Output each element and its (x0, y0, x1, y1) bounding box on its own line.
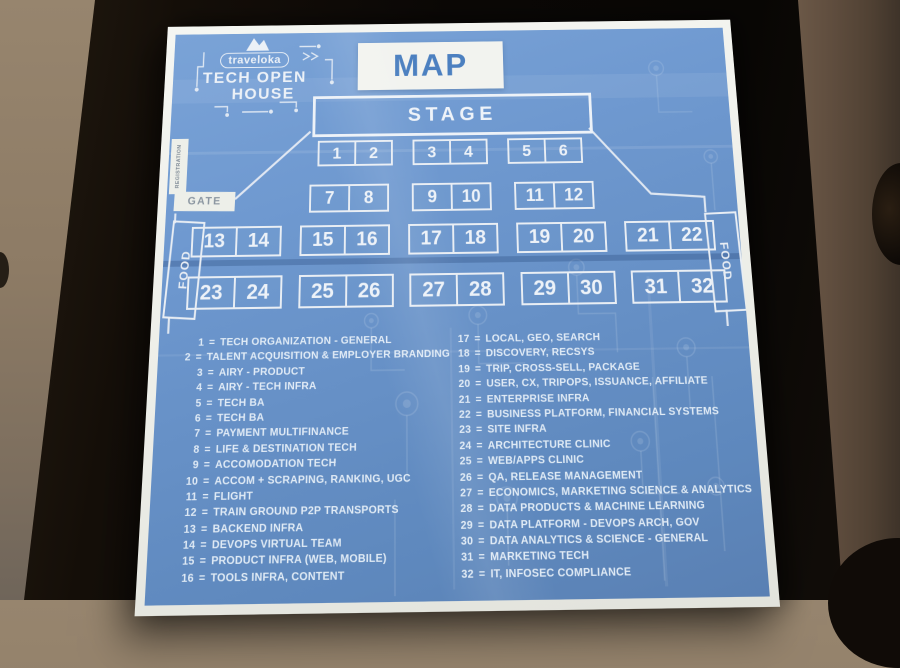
gate-label: GATE (173, 192, 235, 212)
legend-number: 8 (179, 444, 200, 456)
legend-label: ENTERPRISE INFRA (487, 392, 590, 405)
booth-pair: 2728 (409, 272, 505, 307)
legend-label: DATA PLATFORM - DEVOPS ARCH, GOV (489, 516, 700, 531)
legend-label: TRIP, CROSS-SELL, PACKAGE (486, 361, 640, 375)
legend-column-right: 17=LOCAL, GEO, SEARCH18=DISCOVERY, RECSY… (450, 330, 769, 585)
legend-label: ACCOMODATION TECH (215, 458, 337, 472)
legend-equals: = (472, 503, 489, 516)
traveloka-bird-icon (246, 36, 270, 52)
legend-number: 31 (453, 552, 474, 565)
legend-number: 7 (180, 428, 201, 440)
legend-number: 23 (451, 425, 471, 437)
legend-label: TECH BA (217, 397, 264, 409)
legend-label: PAYMENT MULTIFINANCE (216, 426, 349, 440)
traveloka-wordmark: traveloka (220, 52, 290, 68)
registration-label: REGISTRATION (169, 139, 189, 194)
legend-equals: = (470, 348, 486, 360)
booth-cell: 20 (560, 223, 605, 250)
booth-pair: 34 (413, 139, 489, 166)
legend-equals: = (470, 394, 486, 406)
booth-cell: 26 (345, 276, 392, 306)
booth-cell: 2 (354, 142, 391, 164)
booth-cell: 8 (348, 186, 387, 211)
booth-cell: 6 (544, 139, 582, 161)
legend-equals: = (473, 535, 490, 548)
legend-number: 3 (183, 367, 203, 379)
booth-cell: 3 (414, 141, 449, 163)
legend-number: 30 (452, 536, 473, 549)
legend-equals: = (469, 333, 485, 345)
legend-label: DISCOVERY, RECSYS (486, 347, 595, 360)
map-print-area: traveloka TECH OPEN HOUSE MAP STAGE 1234… (145, 28, 770, 606)
booth-cell: 10 (451, 184, 490, 209)
booth-cell: 5 (509, 140, 544, 162)
food-right-text: FOOD (717, 242, 735, 281)
legend-label: AIRY - PRODUCT (219, 366, 305, 379)
legend-number: 20 (450, 379, 470, 391)
legend-number: 5 (181, 398, 201, 410)
legend-label: TOOLS INFRA, CONTENT (210, 570, 344, 585)
legend-number: 22 (451, 409, 471, 421)
legend-equals: = (474, 568, 491, 581)
legend-number: 15 (173, 556, 194, 569)
booth-pair: 1718 (408, 223, 499, 255)
legend-label: ECONOMICS, MARKETING SCIENCE & ANALYTICS (489, 483, 753, 499)
legend-equals: = (199, 444, 216, 456)
legend-number: 27 (452, 487, 473, 499)
legend-equals: = (471, 440, 488, 452)
legend-number: 1 (184, 337, 204, 349)
booth-cell: 19 (518, 224, 561, 251)
booth-cell: 31 (633, 272, 679, 302)
legend-number: 16 (173, 572, 194, 585)
legend-equals: = (201, 397, 218, 409)
legend-equals: = (194, 556, 211, 569)
food-left-text: FOOD (175, 250, 193, 289)
stage-box: STAGE (312, 93, 593, 137)
logo-house-text: HOUSE (231, 85, 295, 104)
legend-label: SITE INFRA (487, 423, 547, 436)
booth-cell: 15 (301, 227, 344, 254)
booth-cell: 17 (410, 225, 452, 252)
legend-label: TALENT ACQUISITION & EMPLOYER BRANDING (206, 349, 450, 364)
legend-number: 17 (450, 334, 470, 346)
legend-label: LIFE & DESTINATION TECH (215, 442, 356, 456)
legend-equals: = (470, 378, 486, 390)
legend-number: 4 (182, 382, 202, 394)
registration-text: REGISTRATION (175, 145, 183, 189)
legend-label: QA, RELEASE MANAGEMENT (488, 469, 642, 483)
legend-number: 26 (452, 471, 472, 483)
booth-cell: 18 (452, 225, 497, 252)
legend-label: AIRY - TECH INFRA (218, 381, 317, 394)
legend-label: DATA PRODUCTS & MACHINE LEARNING (489, 500, 705, 515)
legend-number: 14 (174, 540, 195, 553)
legend-number: 28 (452, 503, 473, 516)
booth-pair: 56 (507, 137, 583, 163)
booth-cell: 14 (235, 228, 280, 255)
legend-label: DEVOPS VIRTUAL TEAM (212, 537, 342, 551)
legend-label: WEB/APPS CLINIC (488, 454, 584, 467)
booth-cell: 9 (414, 185, 451, 210)
legend-equals: = (471, 424, 488, 436)
legend-equals: = (198, 475, 215, 487)
legend-equals: = (198, 459, 215, 471)
legend-equals: = (202, 382, 219, 394)
booth-cell: 4 (449, 141, 486, 163)
booth-pair: 1920 (516, 221, 607, 253)
legend-equals: = (473, 552, 490, 565)
booth-pair: 1516 (299, 224, 390, 256)
legend-number: 25 (451, 456, 471, 468)
legend-equals: = (470, 363, 486, 375)
legend-label: MARKETING TECH (490, 550, 590, 564)
booth-cell: 16 (344, 226, 388, 253)
legend-number: 11 (177, 491, 198, 504)
legend-equals: = (195, 539, 212, 552)
booth-pair: 1112 (514, 181, 595, 210)
legend-label: IT, INFOSEC COMPLIANCE (490, 566, 631, 581)
legend-equals: = (473, 519, 490, 532)
legend-equals: = (204, 337, 220, 349)
legend-equals: = (193, 572, 210, 585)
booth-cell: 28 (456, 274, 503, 304)
legend-equals: = (200, 428, 217, 440)
legend-label: FLIGHT (214, 490, 254, 503)
legend-label: ARCHITECTURE CLINIC (488, 438, 611, 452)
legend-label: BUSINESS PLATFORM, FINANCIAL SYSTEMS (487, 406, 719, 421)
booth-cell: 27 (411, 275, 456, 305)
legend-number: 21 (451, 394, 471, 406)
legend-number: 6 (180, 413, 201, 425)
booth-cell: 12 (553, 183, 593, 208)
legend-label: TECH BA (217, 412, 265, 424)
booth-row-1: 123456 (317, 137, 583, 166)
legend-number: 12 (176, 507, 197, 520)
legend-label: LOCAL, GEO, SEARCH (485, 332, 600, 345)
legend-label: TECH ORGANIZATION - GENERAL (220, 335, 392, 349)
booth-cell: 25 (300, 276, 345, 306)
dark-object-left (0, 252, 9, 288)
booth-pair: 2122 (624, 220, 716, 252)
booth-pair: 910 (412, 182, 492, 211)
booth-cell: 1 (319, 142, 354, 164)
legend-number: 29 (452, 519, 473, 532)
legend-equals: = (202, 367, 219, 379)
event-map-poster: traveloka TECH OPEN HOUSE MAP STAGE 1234… (135, 20, 781, 617)
map-title: MAP (358, 41, 504, 90)
legend-equals: = (200, 413, 217, 425)
booth-cell: 11 (516, 183, 554, 208)
legend-label: DATA ANALYTICS & SCIENCE - GENERAL (490, 532, 709, 548)
legend-equals: = (197, 491, 214, 503)
booth-pair: 78 (309, 184, 389, 213)
booth-pair: 12 (317, 140, 392, 167)
legend-label: PRODUCT INFRA (WEB, MOBILE) (211, 553, 387, 568)
booth-cell: 21 (626, 223, 670, 250)
legend-equals: = (190, 352, 207, 364)
legend-equals: = (196, 507, 213, 520)
booth-cell: 30 (566, 273, 614, 303)
legend-number: 19 (450, 364, 470, 376)
booth-cell: 24 (233, 277, 281, 307)
legend-number: 32 (453, 568, 474, 581)
booth-pair: 2324 (186, 275, 283, 310)
legend-label: ACCOM + SCRAPING, RANKING, UGC (214, 472, 411, 487)
booth-cell: 29 (522, 273, 568, 303)
legend-equals: = (471, 409, 487, 421)
legend-column-left: 1=TECH ORGANIZATION - GENERAL2=TALENT AC… (145, 334, 453, 590)
booth-row-2: 789101112 (309, 181, 595, 213)
booth-cell: 7 (311, 186, 348, 211)
legend-label: USER, CX, TRIPOPS, ISSUANCE, AFFILIATE (486, 375, 708, 390)
legend-equals: = (196, 523, 213, 536)
legend-number: 13 (175, 523, 196, 536)
legend-equals: = (472, 487, 489, 499)
legend-equals: = (472, 471, 489, 483)
booth-pair: 2526 (298, 274, 394, 309)
legend-label: BACKEND INFRA (212, 522, 303, 536)
legend-number: 24 (451, 440, 471, 452)
legend-number: 10 (177, 475, 198, 487)
legend-label: TRAIN GROUND P2P TRANSPORTS (213, 504, 399, 519)
legend-number: 9 (178, 460, 199, 472)
legend-number: 18 (450, 349, 470, 361)
legend-equals: = (472, 455, 489, 467)
booth-legend: 1=TECH ORGANIZATION - GENERAL2=TALENT AC… (145, 330, 768, 590)
booth-pair: 2930 (520, 271, 616, 306)
